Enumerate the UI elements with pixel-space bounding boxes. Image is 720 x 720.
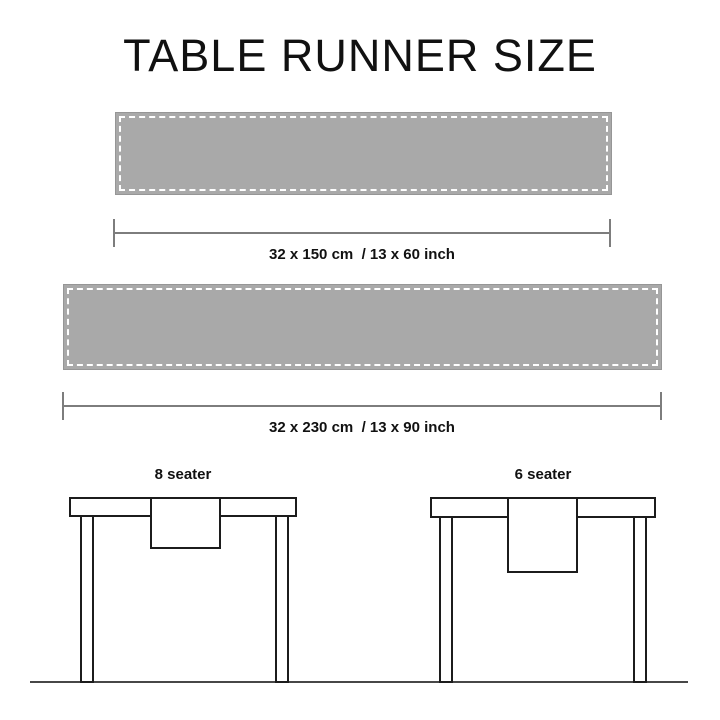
- table-6-leg-right: [633, 515, 647, 683]
- table-6-runner-drape: [507, 497, 578, 573]
- diagram-canvas: TABLE RUNNER SIZE 32 x 150 cm / 13 x 60 …: [0, 0, 720, 720]
- dimension-bar: [113, 232, 611, 234]
- table-label-8-seater: 8 seater: [69, 466, 297, 483]
- table-8-runner-drape: [150, 497, 221, 549]
- dimension-line-230: [62, 392, 662, 420]
- stitch-border: [67, 288, 658, 366]
- stitch-border: [119, 116, 608, 191]
- dimension-label-230: 32 x 230 cm / 13 x 90 inch: [62, 419, 662, 436]
- table-8-leg-left: [80, 515, 94, 683]
- runner-swatch-150: [115, 112, 612, 195]
- dimension-label-150: 32 x 150 cm / 13 x 60 inch: [113, 246, 611, 263]
- table-8-leg-right: [275, 515, 289, 683]
- dimension-tick-right: [660, 392, 662, 420]
- page-title: TABLE RUNNER SIZE: [0, 30, 720, 82]
- runner-swatch-230: [63, 284, 662, 370]
- dimension-line-150: [113, 219, 611, 247]
- table-6-leg-left: [439, 515, 453, 683]
- dimension-bar: [62, 405, 662, 407]
- dimension-tick-right: [609, 219, 611, 247]
- table-label-6-seater: 6 seater: [430, 466, 656, 483]
- ground-line: [30, 681, 688, 683]
